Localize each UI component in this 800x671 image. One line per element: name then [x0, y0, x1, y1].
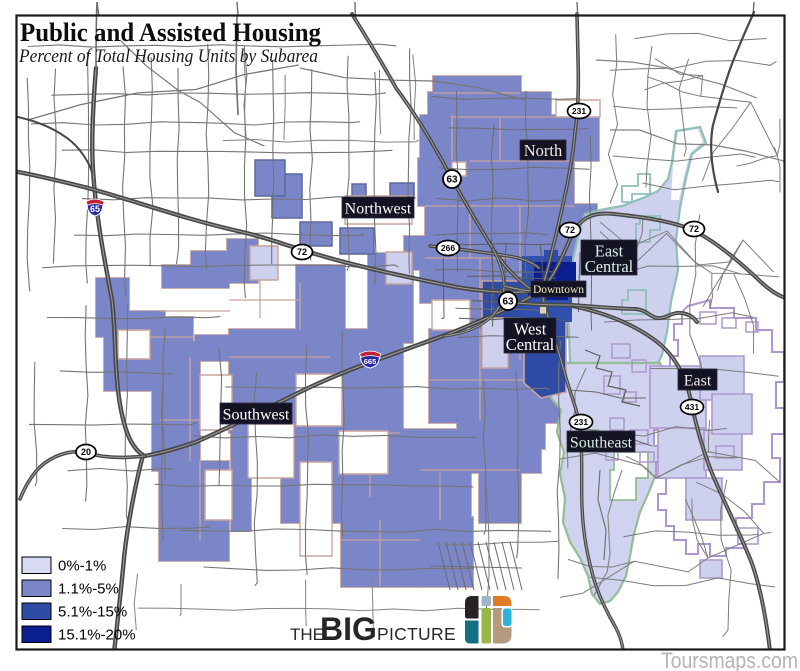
svg-text:Southwest: Southwest: [223, 406, 290, 423]
svg-text:East: East: [684, 372, 712, 389]
svg-text:72: 72: [297, 247, 307, 257]
svg-text:THE: THE: [290, 625, 324, 644]
svg-text:Central: Central: [506, 335, 555, 354]
svg-text:Central: Central: [585, 257, 634, 276]
svg-text:Downtown: Downtown: [533, 284, 584, 296]
svg-text:Northwest: Northwest: [345, 200, 412, 217]
svg-text:63: 63: [502, 297, 514, 308]
svg-text:5.1%-15%: 5.1%-15%: [58, 604, 127, 621]
svg-text:72: 72: [689, 224, 699, 234]
svg-text:BIG: BIG: [320, 611, 377, 647]
svg-text:Percent of Total Housing Units: Percent of Total Housing Units by Subare…: [18, 46, 318, 67]
svg-text:231: 231: [572, 106, 586, 116]
svg-text:15.1%-20%: 15.1%-20%: [58, 627, 136, 644]
svg-text:Southeast: Southeast: [570, 434, 633, 451]
svg-text:1.1%-5%: 1.1%-5%: [58, 581, 119, 598]
svg-text:PICTURE: PICTURE: [377, 624, 456, 644]
svg-text:72: 72: [565, 225, 575, 235]
svg-text:Public and Assisted Housing: Public and Assisted Housing: [20, 18, 321, 47]
svg-text:266: 266: [441, 243, 455, 253]
svg-text:North: North: [524, 141, 563, 160]
svg-text:65: 65: [90, 204, 100, 214]
svg-text:665: 665: [364, 357, 377, 366]
svg-text:231: 231: [574, 417, 588, 427]
svg-text:431: 431: [685, 402, 699, 412]
svg-text:63: 63: [446, 175, 458, 186]
svg-text:0%-1%: 0%-1%: [58, 558, 106, 575]
svg-text:Toursmaps.com: Toursmaps.com: [661, 648, 798, 671]
svg-text:20: 20: [81, 447, 91, 457]
